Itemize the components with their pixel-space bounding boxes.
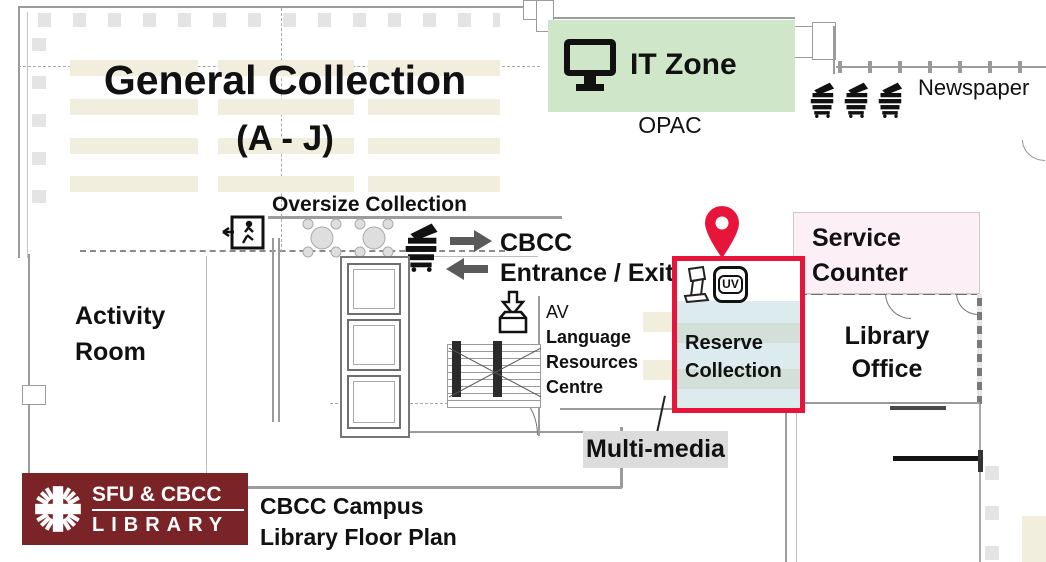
multimedia-label-box: Multi-media: [583, 431, 728, 468]
counter-wall: [978, 450, 983, 472]
av-centre-label: AV Language Resources Centre: [546, 300, 638, 400]
wall-segment: [28, 254, 30, 486]
bookshelf-row: [70, 176, 500, 192]
door-swing: [956, 293, 978, 315]
reading-table-icon: [352, 216, 396, 260]
service-counter-line1: Service: [812, 221, 908, 256]
wall-segment: [796, 410, 797, 562]
service-counter-line2: Counter: [812, 256, 908, 291]
wall-segment: [979, 404, 981, 562]
newspaper-rail-ticks: [838, 61, 1044, 73]
wall-segment: [27, 12, 28, 258]
reading-table-icon: [300, 216, 344, 260]
av-centre-line1: AV: [546, 300, 638, 325]
it-zone-area: IT Zone: [548, 20, 795, 112]
bookshelf-strip: [643, 360, 672, 380]
wall-segment: [532, 17, 795, 19]
reserve-line2: Collection: [685, 357, 782, 385]
av-centre-line4: Centre: [546, 375, 638, 400]
uv-badge-label: UV: [718, 275, 743, 294]
service-counter-area: Service Counter: [793, 212, 980, 294]
logo-line1: SFU & CBCC: [92, 483, 242, 506]
library-logo: SFU & CBCC LIBRARY: [22, 473, 248, 545]
door-swing: [1022, 140, 1045, 161]
arrow-right-icon: [450, 228, 492, 254]
elevator-cell: [347, 263, 401, 315]
caption-line2: Library Floor Plan: [260, 522, 457, 553]
entrance-label-line2: Entrance / Exit: [500, 260, 674, 288]
newspaper-rack-icon: [806, 80, 838, 118]
wall-segment: [18, 6, 20, 258]
av-centre-line3: Resources: [546, 350, 638, 375]
wall-segment: [272, 238, 274, 422]
library-office-label: Library Office: [826, 320, 948, 386]
carrel-chair-column: [32, 38, 46, 206]
newspaper-rack-icon: [874, 80, 906, 118]
library-office-line2: Office: [826, 353, 948, 386]
activity-room-line1: Activity: [75, 298, 165, 334]
wall-segment: [790, 402, 980, 404]
bookshelf-strip: [1022, 516, 1046, 562]
newspaper-rack-icon: [840, 80, 872, 118]
computer-monitor-icon: [562, 35, 618, 93]
general-collection-label: General Collection: [75, 58, 495, 103]
wall-segment: [278, 238, 280, 422]
activity-room-label: Activity Room: [75, 298, 165, 370]
elevator-cell-inner: [353, 325, 395, 365]
newspaper-label: Newspaper: [918, 76, 1029, 100]
self-checkout-kiosk-icon: [682, 265, 710, 303]
bookshelf-strip: [643, 312, 672, 332]
plan-caption: CBCC Campus Library Floor Plan: [260, 491, 457, 553]
door-swing: [885, 293, 911, 319]
wall-segment: [833, 26, 835, 74]
logo-divider: [92, 509, 244, 511]
uv-sterilizer-icon: UV: [713, 266, 748, 303]
elevator-cell: [347, 319, 401, 371]
reserve-collection-label: Reserve Collection: [685, 329, 782, 385]
elevator-cell-inner: [353, 269, 395, 309]
caritas-cross-icon: [30, 481, 86, 537]
oversize-collection-label: Oversize Collection: [272, 193, 467, 216]
it-zone-label: IT Zone: [630, 48, 737, 81]
reserve-collection-area: UV Reserve Collection: [672, 256, 805, 413]
service-counter-label: Service Counter: [812, 221, 908, 291]
arrow-left-icon: [446, 256, 488, 282]
counter-wall: [893, 456, 981, 461]
caption-line1: CBCC Campus: [260, 491, 457, 522]
multimedia-pointer-line: [656, 396, 666, 434]
general-collection-range: (A - J): [75, 120, 495, 159]
elevator-cell: [347, 375, 401, 429]
library-office-line1: Library: [826, 320, 948, 353]
reserve-line1: Reserve: [685, 329, 782, 357]
logo-line2: LIBRARY: [92, 514, 242, 536]
wall-segment: [206, 256, 207, 486]
wall-segment: [18, 6, 532, 8]
carrel-chair-row: [38, 13, 500, 27]
multimedia-label: Multi-media: [586, 436, 725, 464]
av-centre-line2: Language: [546, 325, 638, 350]
book-return-box-icon: [492, 290, 534, 334]
wall-niche: [22, 385, 46, 405]
logo-text: SFU & CBCC LIBRARY: [92, 483, 242, 536]
elevator-bank: [340, 256, 410, 438]
activity-room-line2: Room: [75, 334, 165, 370]
library-floor-plan: General Collection (A - J) Oversize Coll…: [0, 0, 1046, 562]
carrel-chair-column: [985, 466, 999, 562]
opac-label: OPAC: [610, 113, 730, 138]
wall-segment: [890, 406, 946, 410]
wall-segment: [785, 410, 787, 562]
emergency-exit-icon: [222, 214, 266, 252]
elevator-cell-inner: [353, 381, 395, 423]
location-pin-icon: [700, 206, 744, 260]
entrance-label-line1: CBCC: [500, 230, 572, 258]
